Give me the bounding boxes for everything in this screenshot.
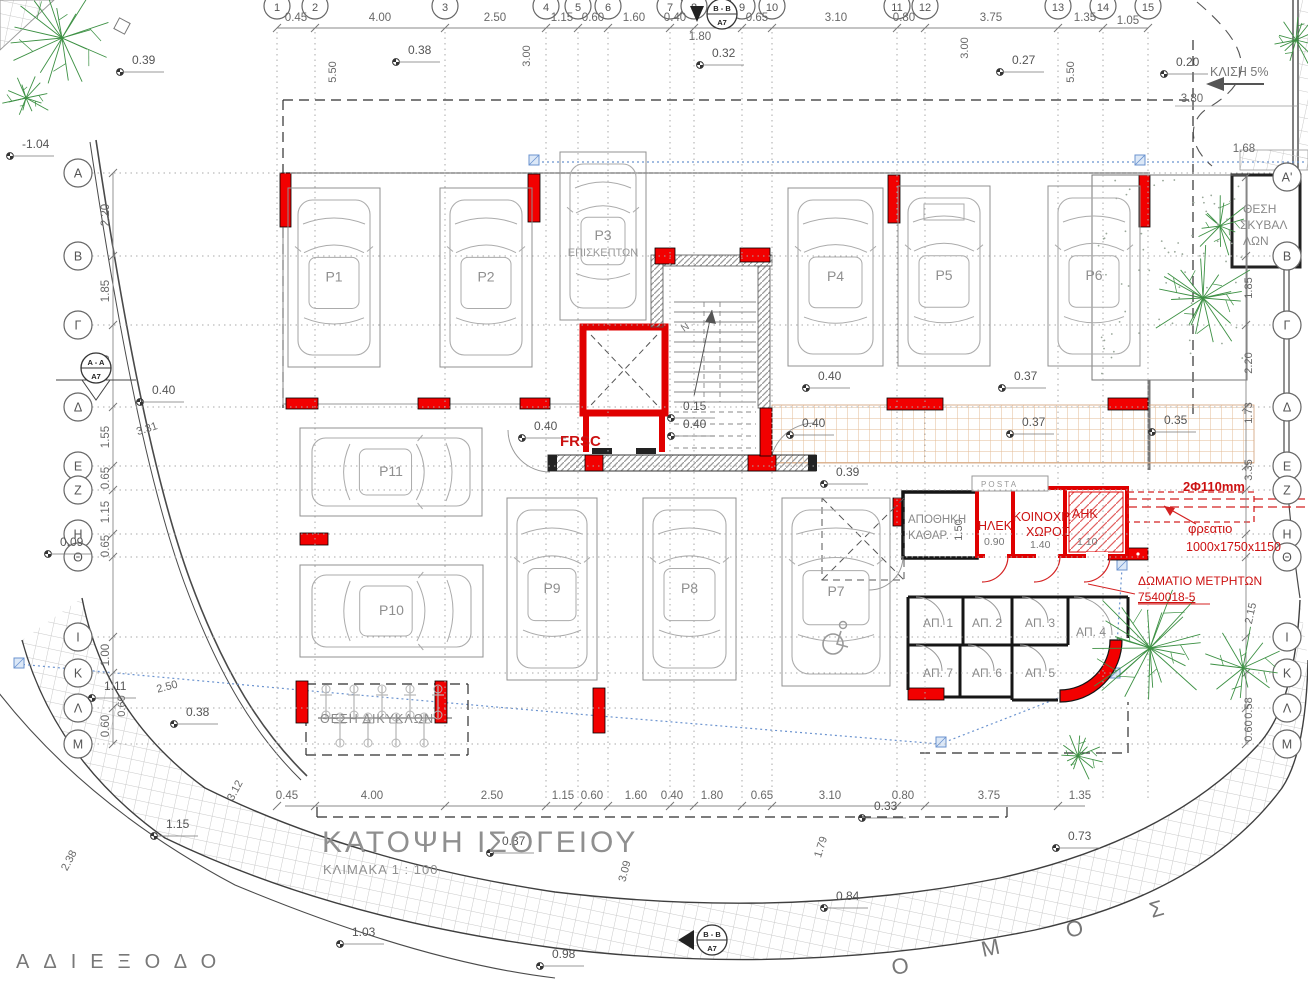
floor-plan: 123456789101112131415ΑΒΓΔΕΖΗΘΙΚΛΜΑ'ΒΓΔΕΖ…: [0, 0, 1308, 981]
section-marker-sub: A7: [717, 18, 727, 27]
grid-bubble-label: Α': [1282, 171, 1293, 185]
grid-bubble-label: 1: [274, 2, 280, 14]
car-windshield: [659, 556, 720, 564]
planting-dot: [1206, 287, 1208, 289]
tree-branch: [1196, 298, 1203, 334]
storage-room-label: ΑΠ. 2: [972, 616, 1002, 630]
tree-twig: [1226, 300, 1230, 312]
planting-dot: [1128, 285, 1130, 287]
grid-bubble-label: 9: [739, 2, 745, 14]
spot-marker-q: [174, 724, 177, 727]
planting-dot: [1168, 252, 1170, 254]
planting-dot: [1106, 233, 1108, 235]
planting-dot: [1235, 282, 1237, 284]
grid-bubble-label: Ζ: [74, 484, 82, 498]
storage-room-label: ΑΠ. 4: [1076, 625, 1106, 639]
spot-level-value: 0.40: [683, 417, 707, 431]
spot-marker-q: [48, 554, 51, 557]
dim-text: 1.60: [623, 12, 645, 24]
planting-dot: [1231, 243, 1233, 245]
tree-twig: [1264, 671, 1267, 682]
grid-bubble-label: Κ: [74, 667, 83, 681]
stair-arrow: [694, 310, 712, 396]
spot-level-value: 0.20: [1176, 55, 1200, 69]
parking-spot-P6: P6: [1048, 186, 1140, 366]
annotation-text: Σ: [1146, 895, 1166, 923]
storage-room-label: ΑΠ. 7: [923, 666, 953, 680]
spot-level: -1.04: [7, 137, 54, 159]
spot-level: 0.40: [668, 417, 715, 439]
dim-text: 2.15: [1243, 602, 1259, 625]
section-marker-sub: A7: [707, 944, 717, 953]
car-hood: [575, 182, 631, 188]
grid-bubble-label: Μ: [1282, 738, 1292, 752]
spot-marker-q: [859, 815, 862, 818]
tree-branch: [1201, 259, 1203, 298]
car-rear-window: [576, 273, 630, 279]
spot-marker-q: [45, 551, 48, 554]
tree-branch: [62, 38, 87, 49]
parking-note: ΕΠΙΣΚΕΠΤΩΝ: [568, 247, 638, 259]
storage-room-label: ΑΠ. 5: [1025, 666, 1055, 680]
annotation-text: ΑΠΟΘΗΚΗ: [908, 514, 966, 526]
spot-level-value: 0.32: [712, 46, 736, 60]
spot-marker-q: [999, 385, 1002, 388]
dim-text: 3.12: [225, 778, 246, 803]
parking-label: P4: [827, 268, 844, 284]
spot-marker-q: [10, 156, 13, 159]
storage-room-label: ΑΠ. 1: [923, 616, 953, 630]
column-dot: [1136, 552, 1139, 555]
spot-marker-q: [1161, 71, 1164, 74]
tree-branch: [57, 8, 62, 38]
tree-twig: [24, 87, 28, 90]
tree-branch: [26, 76, 35, 98]
dim-text: 0.40: [664, 12, 686, 24]
tree-branch: [1243, 651, 1280, 668]
spot-marker-q: [537, 963, 540, 966]
dim-text: 1.79: [812, 835, 830, 859]
spot-level-value: 0.40: [534, 419, 558, 433]
annotation-text: Ο: [1063, 914, 1086, 942]
red-annotation-text: 2Φ110mm: [1183, 479, 1245, 494]
red-annotation-text: φρεατιο: [1188, 521, 1232, 536]
spot-level: 0.37: [999, 369, 1046, 391]
planting-dot: [1190, 352, 1192, 354]
planting-dot: [1101, 373, 1103, 375]
spot-marker-q: [171, 721, 174, 724]
car-rear-window: [1064, 317, 1124, 323]
dim-text: 3.10: [819, 790, 841, 802]
car-rear-window: [659, 630, 720, 636]
planting-dot: [1226, 218, 1228, 220]
boundary-corner-marker: [114, 18, 130, 34]
planting-dot: [1214, 203, 1216, 205]
spot-marker-q: [806, 388, 809, 391]
dim-text: 3.80: [1181, 93, 1203, 105]
planting-dot: [1229, 201, 1231, 203]
planting-dot: [1203, 253, 1205, 255]
spot-marker-q: [393, 59, 396, 62]
dim-text: 0.60: [100, 715, 112, 737]
car-mirrors: [650, 557, 729, 562]
tree-twig: [1093, 760, 1095, 769]
car-windshield: [523, 556, 581, 564]
spot-marker-q: [337, 941, 340, 944]
tree-branch: [1150, 648, 1185, 655]
planting-dot: [1188, 324, 1190, 326]
tree-twig: [59, 14, 68, 20]
tree-twig: [53, 64, 65, 72]
dim-text: 0.60: [116, 695, 128, 716]
scale-label: ΚΛΙΜΑΚΑ 1 : 100: [323, 862, 438, 877]
grid-bubble-label: 14: [1097, 2, 1109, 14]
car-hood: [658, 528, 721, 534]
car-windshield: [456, 245, 516, 253]
planting-dot: [1104, 237, 1106, 239]
tree-branch: [2, 98, 26, 103]
annotation-text: ΣΚΥΒΑΛ: [1240, 218, 1287, 232]
parking-label: P3: [594, 227, 611, 243]
tree-twig: [1079, 741, 1086, 743]
spot-level: 0.39: [117, 53, 164, 75]
planting-dot: [1236, 327, 1238, 329]
grid-bubble-label: Ζ: [1283, 484, 1291, 498]
planting-dot: [1184, 271, 1186, 273]
tree-branch: [19, 98, 26, 115]
spot-level-value: -1.04: [22, 137, 50, 151]
parking-spot-P1: P1: [288, 188, 380, 367]
spot-marker-q: [340, 944, 343, 947]
red-annotation-text: ΑΗΚ: [1072, 507, 1098, 521]
spot-marker-q: [151, 833, 154, 836]
red-annotation-text: FRSC: [560, 433, 601, 450]
spot-level: 0.38: [393, 43, 440, 65]
grid-bubble-label: Λ: [1283, 702, 1292, 716]
grid-bubble-label: 6: [605, 2, 611, 14]
spot-marker-q: [522, 438, 525, 441]
car-mirrors: [295, 247, 373, 252]
dim-text: 1.85: [100, 280, 112, 302]
grid-bubble-label: Μ: [73, 738, 83, 752]
grid-bubble-label: Γ: [75, 319, 82, 333]
dim-text: 1.15: [552, 790, 574, 802]
tree-branch: [48, 38, 62, 83]
spot-level: 1.03: [337, 925, 384, 947]
dim-text: 1.15: [551, 12, 573, 24]
dim-text: 0.60: [581, 790, 603, 802]
dim-text: 1.35: [1074, 12, 1096, 24]
tree-twig: [39, 95, 43, 101]
tree-twig: [1174, 278, 1177, 293]
spot-marker-q: [697, 62, 700, 65]
planting-dot: [1165, 282, 1167, 284]
red-annotation-text: ΧΩΡΟΣ: [1026, 525, 1070, 539]
annotation-text: ΘΕΣΗ ΔΙΚΥΚΛΩΝ: [320, 712, 434, 726]
car-windshield: [798, 558, 874, 566]
planting-dot: [1193, 202, 1195, 204]
red-annotation-text: 1000x1750x1150: [1186, 540, 1281, 554]
dim-text: 1.73: [1243, 402, 1255, 423]
dim-text: 1.80: [701, 790, 723, 802]
dim-text: 3.75: [980, 12, 1002, 24]
tree-twig: [1180, 645, 1189, 660]
parking-label: P7: [827, 583, 844, 599]
car-mirrors: [905, 245, 983, 250]
curved-red-wall: [1060, 640, 1122, 702]
grid-bubble-label: Α: [74, 167, 83, 181]
car-mirrors: [418, 435, 423, 509]
plot-boundary-left: [96, 140, 307, 776]
planting-dot: [1181, 253, 1183, 255]
grid-bubble-label: Β: [1283, 250, 1291, 264]
spot-marker-q: [700, 65, 703, 68]
car-mirrors: [418, 572, 423, 650]
dim-text: 2.20: [100, 204, 112, 226]
car-hood: [803, 218, 868, 224]
dim-text: 2.50: [484, 12, 506, 24]
storage-room-label: ΑΠ. 3: [1025, 616, 1055, 630]
tree-branch: [1150, 600, 1195, 648]
spot-level-value: 0.37: [1014, 369, 1038, 383]
car-rear-window: [804, 317, 867, 323]
spot-level-value: 0.40: [802, 416, 826, 430]
car-windshield: [914, 243, 974, 251]
spot-marker-q: [1164, 74, 1167, 77]
annotation-text: 0.90: [984, 536, 1005, 548]
planting-dot: [1142, 249, 1144, 251]
planting-dot: [1126, 194, 1128, 196]
planting-dot: [1158, 318, 1160, 320]
spot-marker-q: [1056, 848, 1059, 851]
red-annotation-text: ΗΛΕΚ.: [978, 519, 1016, 533]
spot-level: 0.32: [697, 46, 744, 68]
dim-text: 3.10: [825, 12, 847, 24]
red-annotation-text: ΚΟΙΝΟΧΡ.: [1013, 510, 1071, 524]
spot-level-value: 0.73: [1068, 829, 1092, 843]
dim-text: 3.35: [1243, 459, 1255, 480]
spot-marker-q: [117, 69, 120, 72]
dim-text: 1.60: [625, 790, 647, 802]
planting-dot: [1119, 321, 1121, 323]
grid-bubble-label: 15: [1142, 2, 1154, 14]
tree-branch: [26, 98, 48, 110]
planting-dot: [1140, 233, 1142, 235]
annotation-text: Μ: [979, 934, 1002, 962]
tree: [1061, 735, 1102, 779]
spot-level: 0.73: [1053, 829, 1100, 851]
planting-dot: [1234, 198, 1236, 200]
dim-text: 3.75: [978, 790, 1000, 802]
parking-spot-P2: P2: [440, 188, 532, 367]
spot-level: 0.27: [997, 53, 1044, 75]
tree-branch: [1125, 648, 1150, 697]
spot-level-value: 0.37: [1022, 415, 1046, 429]
planting-dot: [1148, 270, 1150, 272]
planting-dot: [1164, 247, 1166, 249]
planting-dot: [1238, 186, 1240, 188]
dim-text: 0.65: [100, 467, 112, 489]
canopy-end-right: [808, 455, 817, 471]
spot-level-value: 0.39: [132, 53, 156, 67]
car-rear-window: [344, 581, 350, 641]
parking-spot-P9: P9: [507, 498, 597, 680]
spot-marker-q: [154, 836, 157, 839]
dim-text: 5.50: [327, 61, 339, 82]
dim-text: 0.65: [746, 12, 768, 24]
annotation-text: ΘΕΣΗ: [1243, 202, 1276, 216]
spot-marker-q: [396, 62, 399, 65]
spot-marker-q: [1000, 72, 1003, 75]
spot-marker-q: [1002, 388, 1005, 391]
dim-text: 3.09: [617, 859, 634, 883]
tree-branch: [1150, 643, 1201, 648]
tree-twig: [1206, 222, 1209, 227]
car-mirrors: [447, 247, 525, 252]
spot-level-value: 0.38: [408, 43, 432, 57]
car-hood: [522, 528, 582, 534]
spot-marker-q: [821, 481, 824, 484]
spot-marker-q: [997, 69, 1000, 72]
car-hood: [303, 218, 365, 224]
planting-dot: [1172, 322, 1174, 324]
spot-level-value: 0.84: [836, 889, 860, 903]
dim-text: 2.50: [481, 790, 503, 802]
annotation-text: P O S T A: [981, 480, 1017, 489]
tree-branch: [1164, 277, 1203, 298]
grid-bubble-label: Ε: [1283, 460, 1291, 474]
spot-level-value: 0.09: [60, 535, 84, 549]
grid-bubble-label: 5: [575, 2, 581, 14]
spot-level: 0.39: [821, 465, 868, 487]
tree-branch: [1243, 627, 1251, 668]
grid-bubble-label: Δ: [74, 401, 82, 415]
tree-twig: [1171, 652, 1174, 664]
annotation-text: Ν: [679, 321, 691, 334]
tree-branch: [1078, 747, 1088, 756]
planting-dot: [1241, 357, 1243, 359]
parking-label: P11: [379, 463, 403, 479]
grid-bubble-label: Δ: [1283, 401, 1291, 415]
car-rear-window: [344, 444, 350, 500]
grid-bubble-label: 4: [543, 2, 549, 14]
planting-dot: [1105, 274, 1107, 276]
planting-dot: [1173, 179, 1175, 181]
dim-text: 3.00: [959, 37, 971, 58]
planting-dot: [1205, 210, 1207, 212]
canopy-end-left: [548, 455, 557, 471]
parking-label: P5: [935, 267, 952, 283]
dim-text: 5.50: [1065, 61, 1077, 82]
grid-bubble-label: Ε: [74, 460, 82, 474]
dim-text: 2.50: [155, 679, 179, 696]
planting-dot: [1210, 195, 1212, 197]
dim-text: 1.68: [1233, 143, 1255, 155]
planting-dot: [1217, 224, 1219, 226]
planting-dot: [1189, 339, 1191, 341]
planting-dot: [1113, 351, 1115, 353]
spot-level: 0.40: [137, 383, 184, 405]
tree-branch: [1061, 755, 1078, 756]
door-jamb: [636, 448, 656, 454]
page-title: ΚΑΤΟΨΗ ΙΣΟΓΕΙΟΥ: [322, 826, 638, 859]
tree-branch: [1220, 226, 1221, 247]
car-hood: [1063, 216, 1125, 222]
tree-twig: [7, 94, 12, 101]
car-windshield: [1064, 243, 1124, 251]
slope-arrow-icon: [1206, 77, 1224, 91]
grid-bubble-label: Θ: [73, 551, 83, 565]
dim-text: 3.31: [135, 420, 159, 438]
elevator-shaft: [583, 327, 665, 413]
tree: [1092, 590, 1200, 700]
grid-bubble-label: 3: [442, 2, 448, 14]
dim-text: 4.00: [369, 12, 391, 24]
tree-branch: [1203, 298, 1213, 342]
spot-marker-q: [671, 418, 674, 421]
car-hood: [913, 216, 975, 222]
parking-label: P10: [379, 602, 404, 618]
parking-label: P9: [543, 580, 560, 596]
parking-label: P1: [325, 269, 342, 285]
spot-level-value: 0.27: [1012, 53, 1036, 67]
tree-twig: [1279, 36, 1283, 42]
dim-text: 0.65: [100, 535, 112, 557]
planting-dot: [1121, 283, 1123, 285]
tree-twig: [1212, 284, 1221, 286]
tree-branch: [1147, 610, 1150, 648]
parking-spot-P10: P10: [300, 565, 483, 657]
section-marker-sub: A7: [91, 372, 101, 381]
tree-branch: [1078, 756, 1089, 779]
planting-dot: [1103, 348, 1105, 350]
parking-spot-P3: P3ΕΠΙΣΚΕΠΤΩΝ: [560, 152, 646, 320]
planting-dot: [1225, 261, 1227, 263]
grid-bubble-label: 2: [312, 2, 318, 14]
grid-bubble-label: Ι: [76, 631, 79, 645]
grid-bubble-label: Λ: [74, 702, 83, 716]
annotation-text: 1.10: [1077, 536, 1098, 548]
stair-core: [651, 255, 772, 448]
planting-dot: [1124, 311, 1126, 313]
tree-twig: [1285, 53, 1292, 54]
spot-level-value: 0.40: [818, 369, 842, 383]
tree-twig: [1220, 203, 1230, 207]
grid-bubble-label: Κ: [1283, 667, 1292, 681]
parking-spot-P8: P8: [643, 498, 736, 680]
spot-marker-q: [1053, 845, 1056, 848]
floor-plan-drawing: 123456789101112131415ΑΒΓΔΕΖΗΘΙΚΛΜΑ'ΒΓΔΕΖ…: [0, 0, 1308, 981]
tree-branch: [62, 0, 90, 38]
planting-dot: [1240, 256, 1242, 258]
spot-level-value: 1.03: [352, 925, 376, 939]
parking-spot-P7: P7: [782, 498, 890, 686]
spot-marker-q: [540, 966, 543, 969]
planting-dot: [1153, 184, 1155, 186]
spot-level: 0.40: [519, 419, 566, 441]
planting-dot: [1162, 180, 1164, 182]
dim-text: 2.20: [1243, 352, 1255, 373]
dim-text: 0.60: [582, 12, 604, 24]
annotation-text: Ο: [890, 952, 911, 980]
spot-level-value: 0.40: [152, 383, 176, 397]
dim-text: 2.38: [59, 848, 80, 873]
planting-dot: [1129, 188, 1131, 190]
spot-level: 0.20: [1161, 55, 1208, 77]
annotation-text: ΚΛΙΣΗ 5%: [1210, 65, 1268, 79]
grid-bubble-label: Θ: [1282, 551, 1292, 565]
grid-bubble-label: 13: [1052, 2, 1064, 14]
